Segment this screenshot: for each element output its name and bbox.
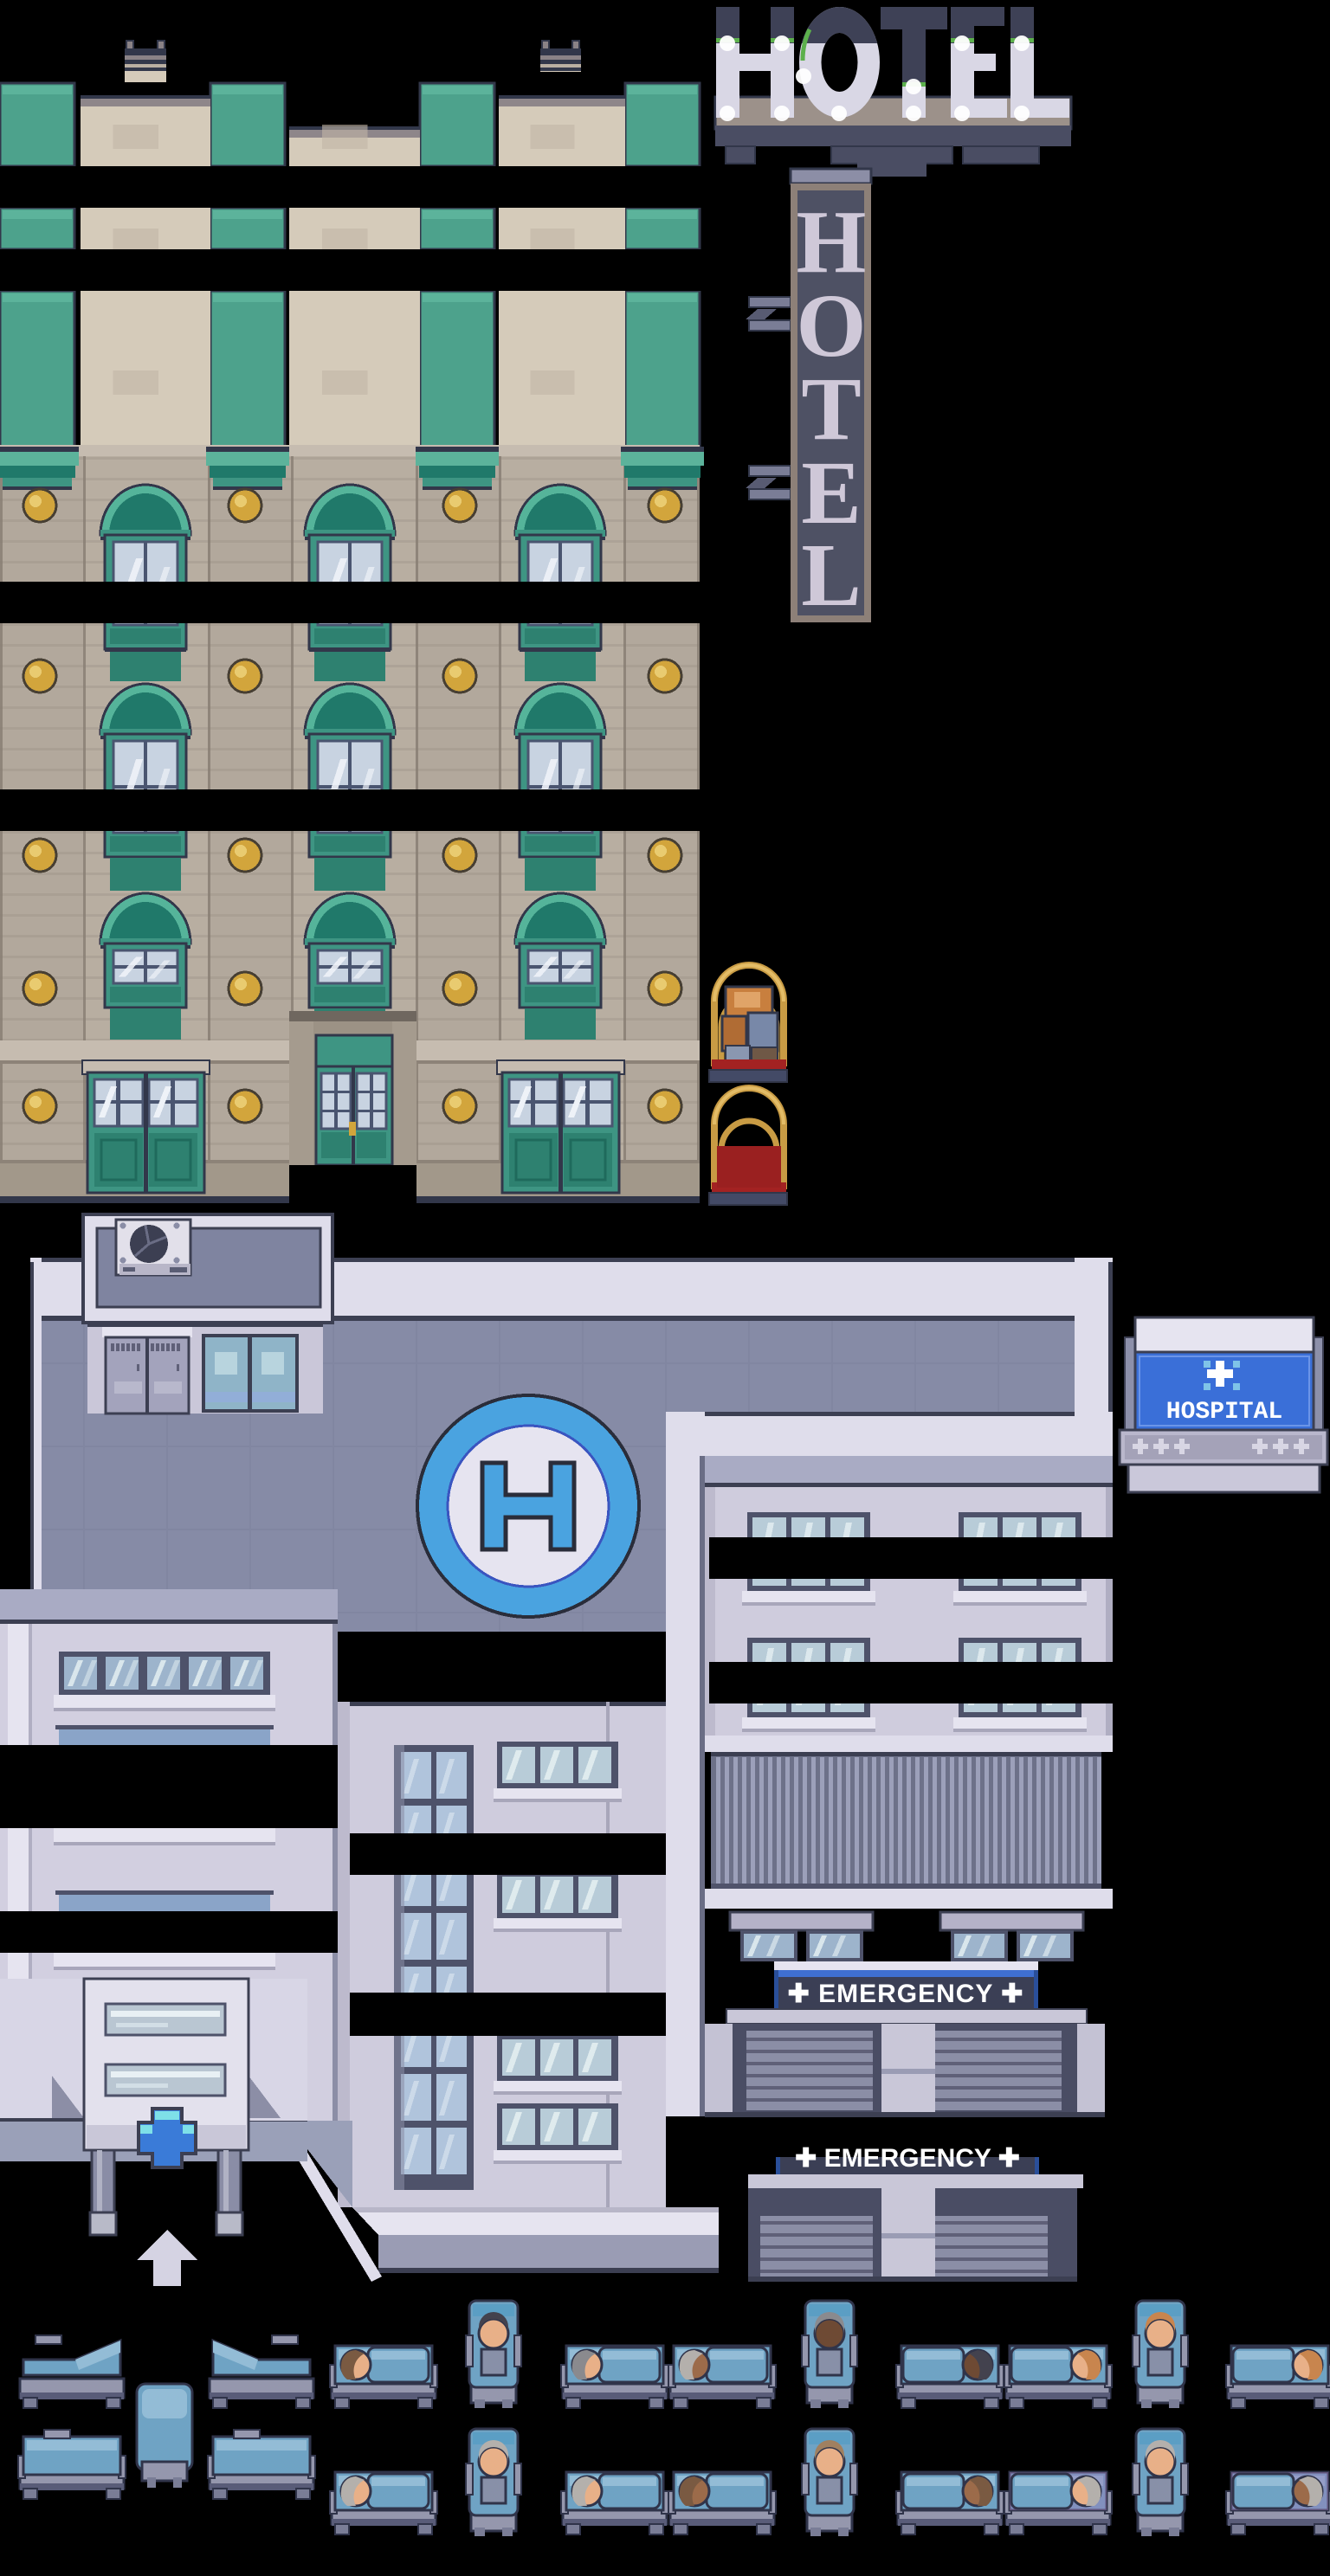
svg-text:✚ EMERGENCY ✚: ✚ EMERGENCY ✚ xyxy=(795,2144,1020,2173)
svg-text:HOSPITAL: HOSPITAL xyxy=(1166,1399,1282,1426)
svg-text:L: L xyxy=(801,525,861,625)
svg-text:✚ EMERGENCY ✚: ✚ EMERGENCY ✚ xyxy=(788,1980,1024,2008)
